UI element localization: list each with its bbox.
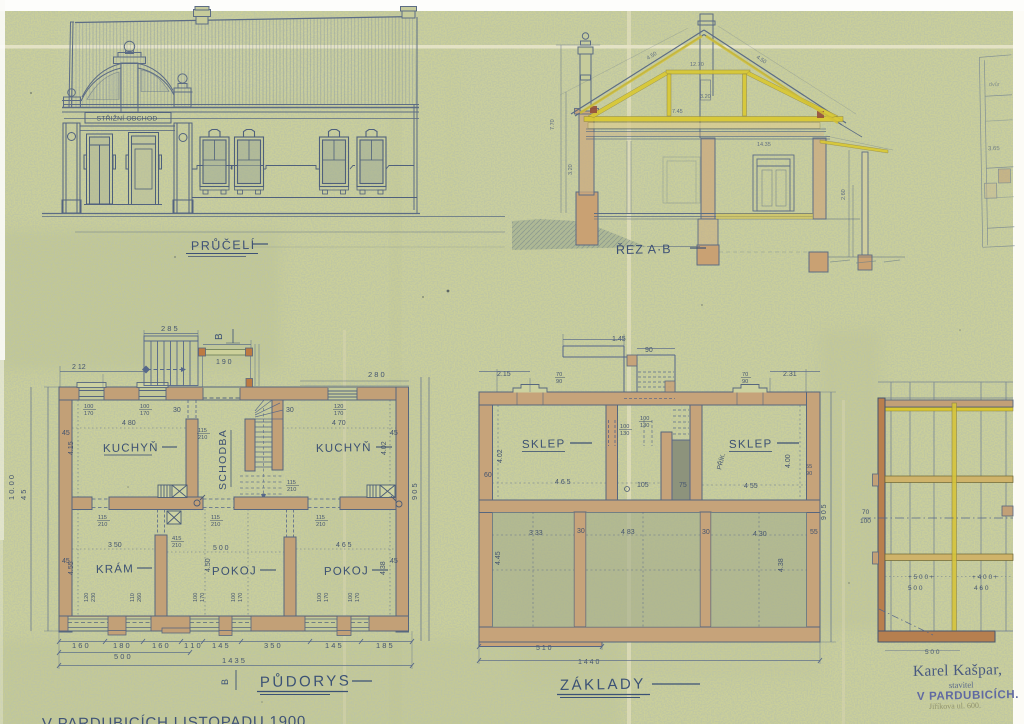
svg-text:30: 30 [702,529,710,536]
svg-text:KUCHYŇ: KUCHYŇ [316,441,372,455]
svg-text:45: 45 [62,430,70,437]
svg-text:30: 30 [286,407,294,414]
svg-text:130: 130 [620,431,629,437]
svg-text:KRÁM: KRÁM [96,562,134,576]
svg-text:210: 210 [316,522,325,528]
svg-text:5 1 0: 5 1 0 [536,645,552,652]
svg-text:+ 4 0 0 +: + 4 0 0 + [972,574,998,581]
svg-text:170: 170 [355,593,361,602]
svg-text:4 55: 4 55 [744,483,758,490]
svg-text:45: 45 [390,430,398,437]
svg-text:SKLEP: SKLEP [522,438,566,451]
svg-text:Karel Kašpar,: Karel Kašpar, [913,661,1003,680]
svg-text:1 6 0: 1 6 0 [152,641,169,650]
svg-text:PRŮČELÍ: PRŮČELÍ [191,237,256,253]
svg-text:115: 115 [316,515,325,521]
svg-text:45: 45 [390,558,398,565]
svg-text:2 12: 2 12 [72,364,86,371]
svg-text:3.20: 3.20 [700,94,711,100]
svg-text:1 9 0: 1 9 0 [216,359,232,366]
svg-text:4 70: 4 70 [332,420,346,427]
svg-text:2 8 5: 2 8 5 [161,324,178,333]
svg-text:170: 170 [324,593,330,602]
svg-text:SCHODBA: SCHODBA [217,429,229,490]
svg-text:5 0 0: 5 0 0 [925,649,940,656]
svg-text:415: 415 [172,536,181,542]
svg-text:4.02: 4.02 [381,441,388,455]
svg-text:3 50: 3 50 [108,542,122,549]
svg-text:2.60: 2.60 [841,189,847,200]
svg-text:+ 5 0 0 +: + 5 0 0 + [908,574,934,581]
svg-text:7.45: 7.45 [672,109,683,115]
svg-text:30: 30 [173,407,181,414]
svg-text:Jiříkova ul. 600.: Jiříkova ul. 600. [929,701,981,711]
svg-text:90: 90 [806,471,812,477]
svg-text:4.38: 4.38 [380,561,387,575]
svg-text:2 8 0: 2 8 0 [368,370,385,379]
svg-text:1 4 5: 1 4 5 [212,641,229,650]
svg-text:5 0 0: 5 0 0 [213,545,229,552]
svg-text:210: 210 [198,435,207,441]
svg-text:115: 115 [287,480,296,486]
svg-text:170: 170 [140,411,149,417]
svg-text:75: 75 [679,482,687,489]
svg-text:POKOJ: POKOJ [212,565,257,578]
svg-text:3.65: 3.65 [988,146,1000,152]
svg-text:ŘEZ A·B: ŘEZ A·B [616,241,672,257]
svg-text:170: 170 [200,593,206,602]
svg-text:1 0. 0 0: 1 0. 0 0 [7,475,16,500]
svg-text:130: 130 [640,423,649,429]
svg-text:55: 55 [806,464,812,470]
svg-text:55: 55 [810,529,818,536]
svg-text:4.15: 4.15 [68,441,75,455]
svg-text:100: 100 [193,593,199,602]
svg-text:1 4 5: 1 4 5 [325,641,342,650]
svg-text:5 0 0: 5 0 0 [908,585,923,592]
svg-text:3 5 0: 3 5 0 [264,641,281,650]
svg-text:210: 210 [287,487,296,493]
svg-text:3.20: 3.20 [568,164,574,175]
svg-text:2.15: 2.15 [497,371,511,378]
svg-text:170: 170 [334,411,343,417]
svg-text:4.50: 4.50 [205,558,212,572]
svg-text:4.00: 4.00 [785,454,792,468]
svg-text:4 6 5: 4 6 5 [336,542,352,549]
svg-text:260: 260 [137,593,143,602]
svg-text:1 1 0: 1 1 0 [184,641,201,650]
svg-text:100: 100 [860,518,871,525]
svg-text:1 4 4 0: 1 4 4 0 [578,659,600,666]
svg-text:90: 90 [645,347,653,354]
svg-text:70: 70 [742,372,748,378]
svg-text:4 83: 4 83 [621,529,635,536]
svg-text:14.35: 14.35 [757,142,771,148]
svg-text:2.31: 2.31 [783,371,797,378]
svg-text:POKOJ: POKOJ [324,565,369,578]
svg-text:PŮDORYS: PŮDORYS [260,671,352,691]
svg-text:100: 100 [317,593,323,602]
svg-text:100: 100 [620,424,629,430]
svg-text:60: 60 [484,472,492,479]
svg-text:115: 115 [98,515,107,521]
svg-text:90: 90 [742,379,748,385]
svg-text:3 33: 3 33 [529,530,543,537]
svg-text:4 30: 4 30 [753,531,767,538]
svg-text:4 6 5: 4 6 5 [555,479,571,486]
svg-text:4 5: 4 5 [19,490,28,500]
svg-text:170: 170 [238,593,244,602]
svg-text:7.70: 7.70 [550,119,556,130]
svg-text:230: 230 [91,593,97,602]
svg-text:4.38: 4.38 [778,558,785,572]
svg-text:1 8 0: 1 8 0 [113,641,130,650]
svg-text:110: 110 [130,593,136,602]
svg-text:4 80: 4 80 [122,420,136,427]
svg-text:1 6 0: 1 6 0 [72,641,89,650]
svg-text:115: 115 [211,515,220,521]
svg-text:105: 105 [637,482,649,489]
svg-text:4 6 0: 4 6 0 [974,585,989,592]
svg-text:1 8 5: 1 8 5 [376,641,393,650]
svg-text:ZÁKLADY: ZÁKLADY [560,676,646,694]
svg-text:B: B [214,333,225,340]
svg-text:120: 120 [84,593,90,602]
svg-text:70: 70 [862,509,870,516]
svg-text:210: 210 [172,543,181,549]
svg-text:30: 30 [577,528,585,535]
svg-text:V PARDUBICÍCH LISTOPADU 1900: V PARDUBICÍCH LISTOPADU 1900 [42,713,306,724]
svg-text:1 4 3 5: 1 4 3 5 [222,656,245,665]
svg-text:4.45: 4.45 [495,551,502,565]
svg-text:120: 120 [334,404,343,410]
svg-text:4.02: 4.02 [497,449,504,463]
svg-text:45: 45 [62,558,70,565]
svg-text:dvůr: dvůr [989,81,1000,88]
svg-text:100: 100 [84,404,93,410]
svg-text:9 0 5: 9 0 5 [821,504,828,520]
svg-text:170: 170 [84,411,93,417]
svg-text:100: 100 [640,416,649,422]
svg-text:100: 100 [348,593,354,602]
svg-text:stavitel: stavitel [949,679,974,690]
svg-text:B: B [220,679,230,685]
svg-text:210: 210 [211,522,220,528]
svg-text:STŘIŽNÍ OBCHOD: STŘIŽNÍ OBCHOD [97,114,158,123]
svg-text:5 0 0: 5 0 0 [114,652,131,661]
svg-text:SKLEP: SKLEP [729,438,773,451]
svg-text:12.70: 12.70 [690,62,704,68]
svg-text:90: 90 [556,379,562,385]
svg-text:70: 70 [556,372,562,378]
svg-text:KUCHYŇ: KUCHYŇ [103,441,159,455]
svg-text:100: 100 [140,404,149,410]
svg-text:115: 115 [198,428,207,434]
svg-text:100: 100 [231,593,237,602]
svg-text:9 0 5: 9 0 5 [410,483,419,500]
svg-text:210: 210 [98,522,107,528]
